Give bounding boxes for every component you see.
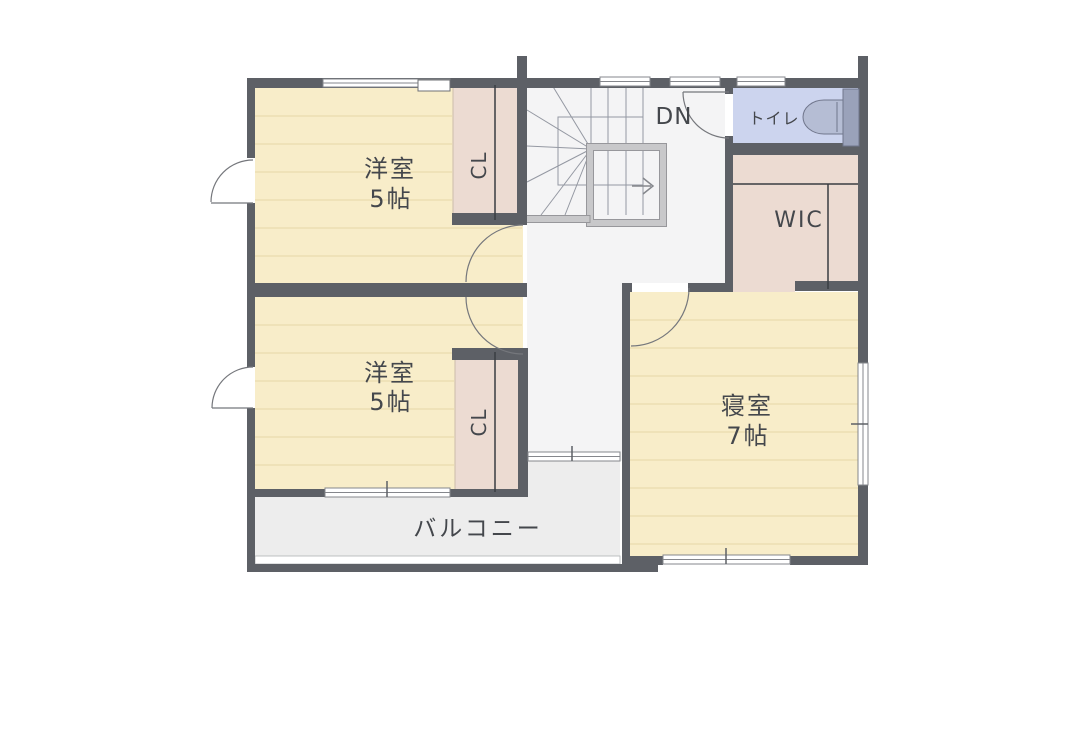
wall-room-divider <box>247 283 527 297</box>
toilet-tank <box>843 89 859 146</box>
wall-left-3 <box>247 408 255 568</box>
wic-label: WIC <box>774 208 824 233</box>
door-room-lower-exterior <box>212 367 253 408</box>
wall-bedroom-top-corner <box>622 283 632 292</box>
balcony-rail-band <box>255 556 620 564</box>
wall-closet-upper-right <box>517 88 527 225</box>
wall-stub-left <box>517 56 527 78</box>
wall-bedroom-left <box>622 283 630 565</box>
room-upper-label: 洋室 <box>364 155 416 183</box>
wall-rooms-bottom-2 <box>450 489 527 497</box>
door-room-upper-exterior <box>211 160 253 202</box>
wall-stub-right <box>858 56 868 78</box>
window-sill-box <box>418 80 450 91</box>
bedroom-size: 7帖 <box>726 422 769 450</box>
wall-bedroom-bottom-1 <box>622 556 663 565</box>
stair-rail-extension <box>525 216 590 223</box>
wall-wic-left <box>725 143 733 283</box>
stairs-dn-label: DN <box>656 104 693 130</box>
wall-bedroom-bottom-2 <box>790 556 868 565</box>
room-lower-size: 5帖 <box>369 388 412 416</box>
wall-right-2 <box>858 485 868 565</box>
floor-plan-svg: 洋室 5帖 洋室 5帖 寝室 7帖 CL CL WIC トイレ DN バルコニー <box>0 0 1080 739</box>
wall-wic-bottom <box>795 281 868 291</box>
toilet-label: トイレ <box>748 109 799 128</box>
wall-bedroom-top <box>688 283 733 292</box>
room-upper-size: 5帖 <box>369 185 412 213</box>
wall-rooms-bottom-1 <box>247 489 325 497</box>
room-lower-label: 洋室 <box>364 359 416 387</box>
wic-opening <box>733 281 795 292</box>
balcony-label: バルコニー <box>413 516 543 542</box>
wall-left-1 <box>247 88 255 158</box>
floor-plan-canvas: 洋室 5帖 洋室 5帖 寝室 7帖 CL CL WIC トイレ DN バルコニー <box>0 0 1080 739</box>
wall-closet-lower-right <box>518 360 528 497</box>
bedroom-label: 寝室 <box>721 392 773 420</box>
closet-upper-label: CL <box>467 150 491 179</box>
wall-closet-upper-bottom <box>452 213 527 225</box>
hallway-floor-lower <box>527 283 622 461</box>
wall-toilet-left-1 <box>725 88 733 94</box>
closet-lower-label: CL <box>467 407 491 436</box>
balcony-parapet <box>247 564 658 572</box>
